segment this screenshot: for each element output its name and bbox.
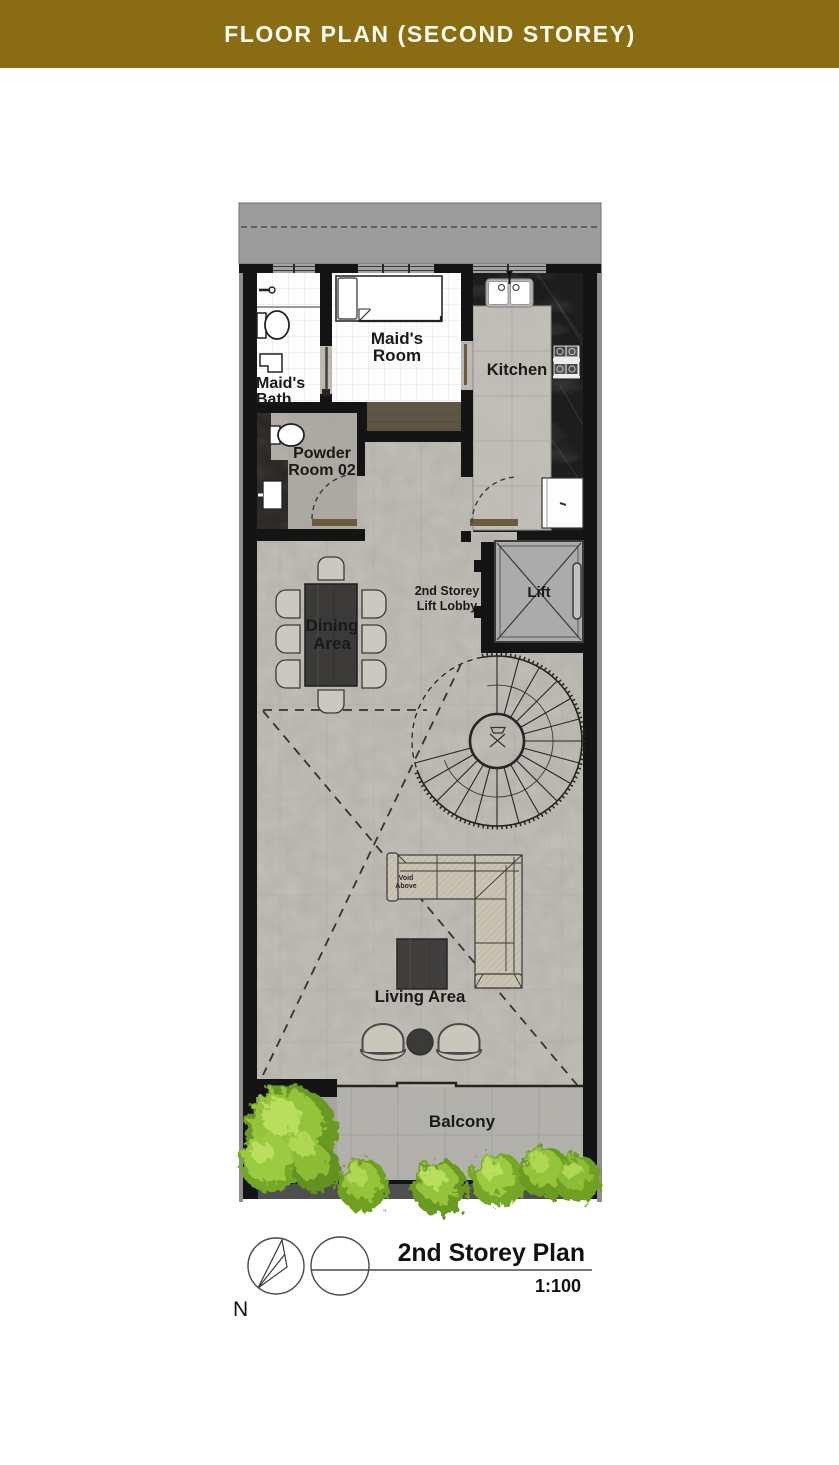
svg-text:Bath: Bath — [256, 391, 292, 408]
svg-text:Void: Void — [399, 875, 414, 882]
svg-text:Lift Lobby: Lift Lobby — [417, 599, 477, 613]
svg-text:1:100: 1:100 — [535, 1276, 581, 1296]
svg-text:Above: Above — [395, 883, 417, 890]
svg-text:Balcony: Balcony — [429, 1112, 496, 1131]
svg-text:Maid's: Maid's — [256, 375, 305, 392]
svg-text:2nd Storey: 2nd Storey — [415, 584, 480, 598]
svg-text:Area: Area — [313, 634, 351, 653]
svg-text:Living Area: Living Area — [375, 987, 466, 1006]
svg-text:Room: Room — [373, 346, 421, 365]
svg-text:N: N — [233, 1298, 248, 1321]
svg-text:Dining: Dining — [306, 616, 359, 635]
svg-text:Kitchen: Kitchen — [487, 361, 548, 379]
svg-text:Room 02: Room 02 — [288, 462, 356, 479]
svg-text:Lift: Lift — [527, 584, 550, 601]
svg-text:2nd Storey Plan: 2nd Storey Plan — [398, 1240, 585, 1267]
svg-text:Powder: Powder — [293, 445, 351, 462]
